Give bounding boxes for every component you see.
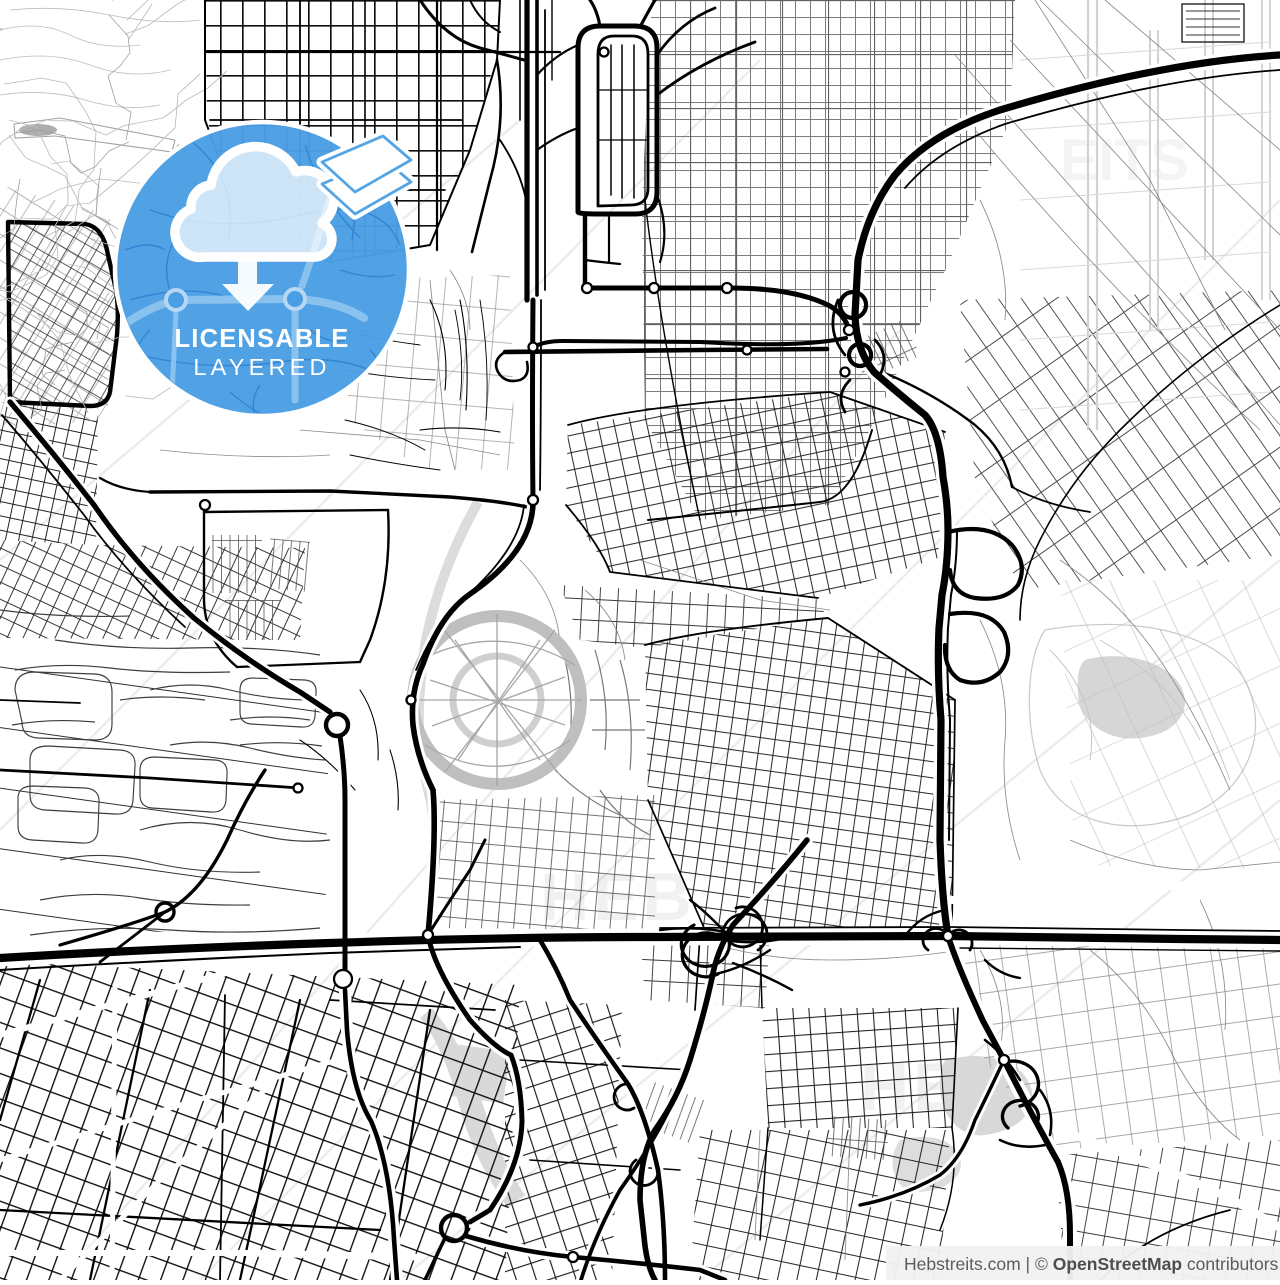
svg-text:LICENSABLE: LICENSABLE (175, 325, 350, 353)
svg-text:EITS: EITS (1060, 128, 1189, 193)
svg-text:LAYERED: LAYERED (193, 354, 330, 380)
svg-text:Hebstreits.com | © OpenStreetM: Hebstreits.com | © OpenStreetMap contrib… (904, 1254, 1279, 1274)
